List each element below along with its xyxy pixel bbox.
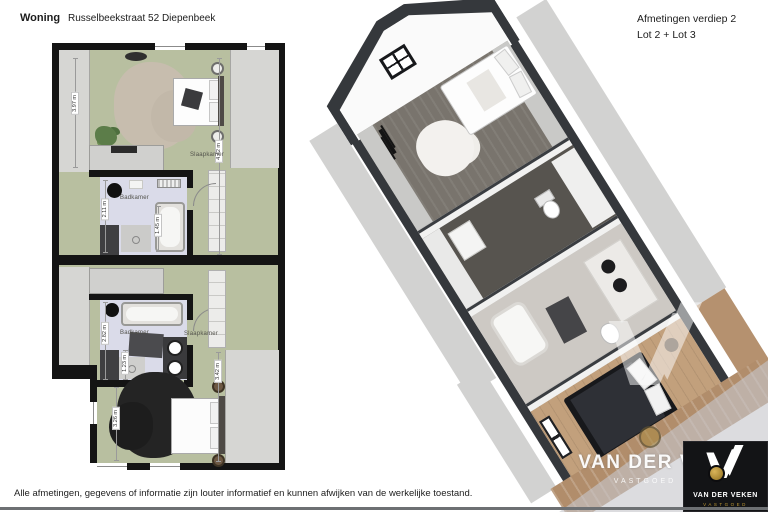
room-label-bathroom-top: Badkamer <box>107 195 162 201</box>
shelf <box>129 180 143 189</box>
logo-gold-circle <box>708 465 725 482</box>
attic-strip-bottom-right <box>225 350 279 463</box>
closet <box>89 268 164 294</box>
bedside-table <box>211 62 224 75</box>
doc-type-label: Woning <box>20 12 60 24</box>
dimension-label: 2.11 m <box>101 198 109 220</box>
radiator <box>157 179 181 188</box>
attic-strip-bottom-left <box>59 267 90 367</box>
window <box>247 43 265 50</box>
plant <box>95 126 117 146</box>
logo-company-name: VAN DER VEKEN <box>684 492 767 499</box>
ceiling-fan <box>125 52 147 61</box>
floorplan-page: Woning Russelbeekstraat 52 Diepenbeek Af… <box>0 0 768 512</box>
dimension-label: 3.42 m <box>214 360 222 383</box>
window <box>90 402 97 424</box>
attic-strip-top-right <box>230 50 279 168</box>
dimension-line: 2.11 m <box>105 180 106 253</box>
dimension-line: 3.97 m <box>75 58 76 168</box>
floor-plan-2d: 3.97 m 4.42 m 2.11 m 1.45 m 2.82 m 1.23 … <box>52 43 285 470</box>
dimension-line: 3.26 m <box>116 387 117 461</box>
utility-block <box>100 225 119 255</box>
dimension-line: 1.45 m <box>158 206 159 252</box>
shower-drain <box>128 365 136 373</box>
sink <box>105 303 119 317</box>
wall <box>187 170 193 188</box>
shower-drain <box>132 236 140 244</box>
room-label-bedroom-top: Slaapkamer <box>175 152 239 158</box>
company-logo-box: VAN DER VEKEN VASTGOED <box>683 441 768 512</box>
wardrobe <box>208 170 226 252</box>
dimension-line: 2.82 m <box>105 302 106 380</box>
dimension-label: 1.45 m <box>154 214 162 237</box>
room-label-bathroom-bottom: Badkamer <box>107 330 162 336</box>
utility-block <box>100 350 119 380</box>
window <box>150 463 180 470</box>
footer-divider <box>0 507 768 510</box>
bathtub <box>121 302 183 326</box>
wall <box>52 372 97 379</box>
closet-shelf <box>111 146 137 153</box>
disclaimer-text: Alle afmetingen, gegevens of informatie … <box>14 488 472 499</box>
address-label: Russelbeekstraat 52 Diepenbeek <box>68 13 215 24</box>
dimension-label: 3.26 m <box>112 407 120 430</box>
watermark-vv-icon <box>598 295 718 395</box>
watermark-gold-circle <box>639 426 661 448</box>
vanity-sink <box>167 340 183 356</box>
room-label-bedroom-bottom: Slaapkamer <box>169 331 233 337</box>
wall <box>52 365 97 372</box>
dimension-line: 3.42 m <box>218 352 219 462</box>
dimension-label: 1.23 m <box>121 352 129 375</box>
divider-wall <box>59 255 278 265</box>
dimension-label: 3.97 m <box>71 92 79 115</box>
window <box>97 463 127 470</box>
window <box>155 43 185 50</box>
dimension-line: 1.23 m <box>125 350 126 380</box>
wall <box>187 300 193 320</box>
headboard <box>219 396 225 454</box>
wall <box>89 170 193 177</box>
